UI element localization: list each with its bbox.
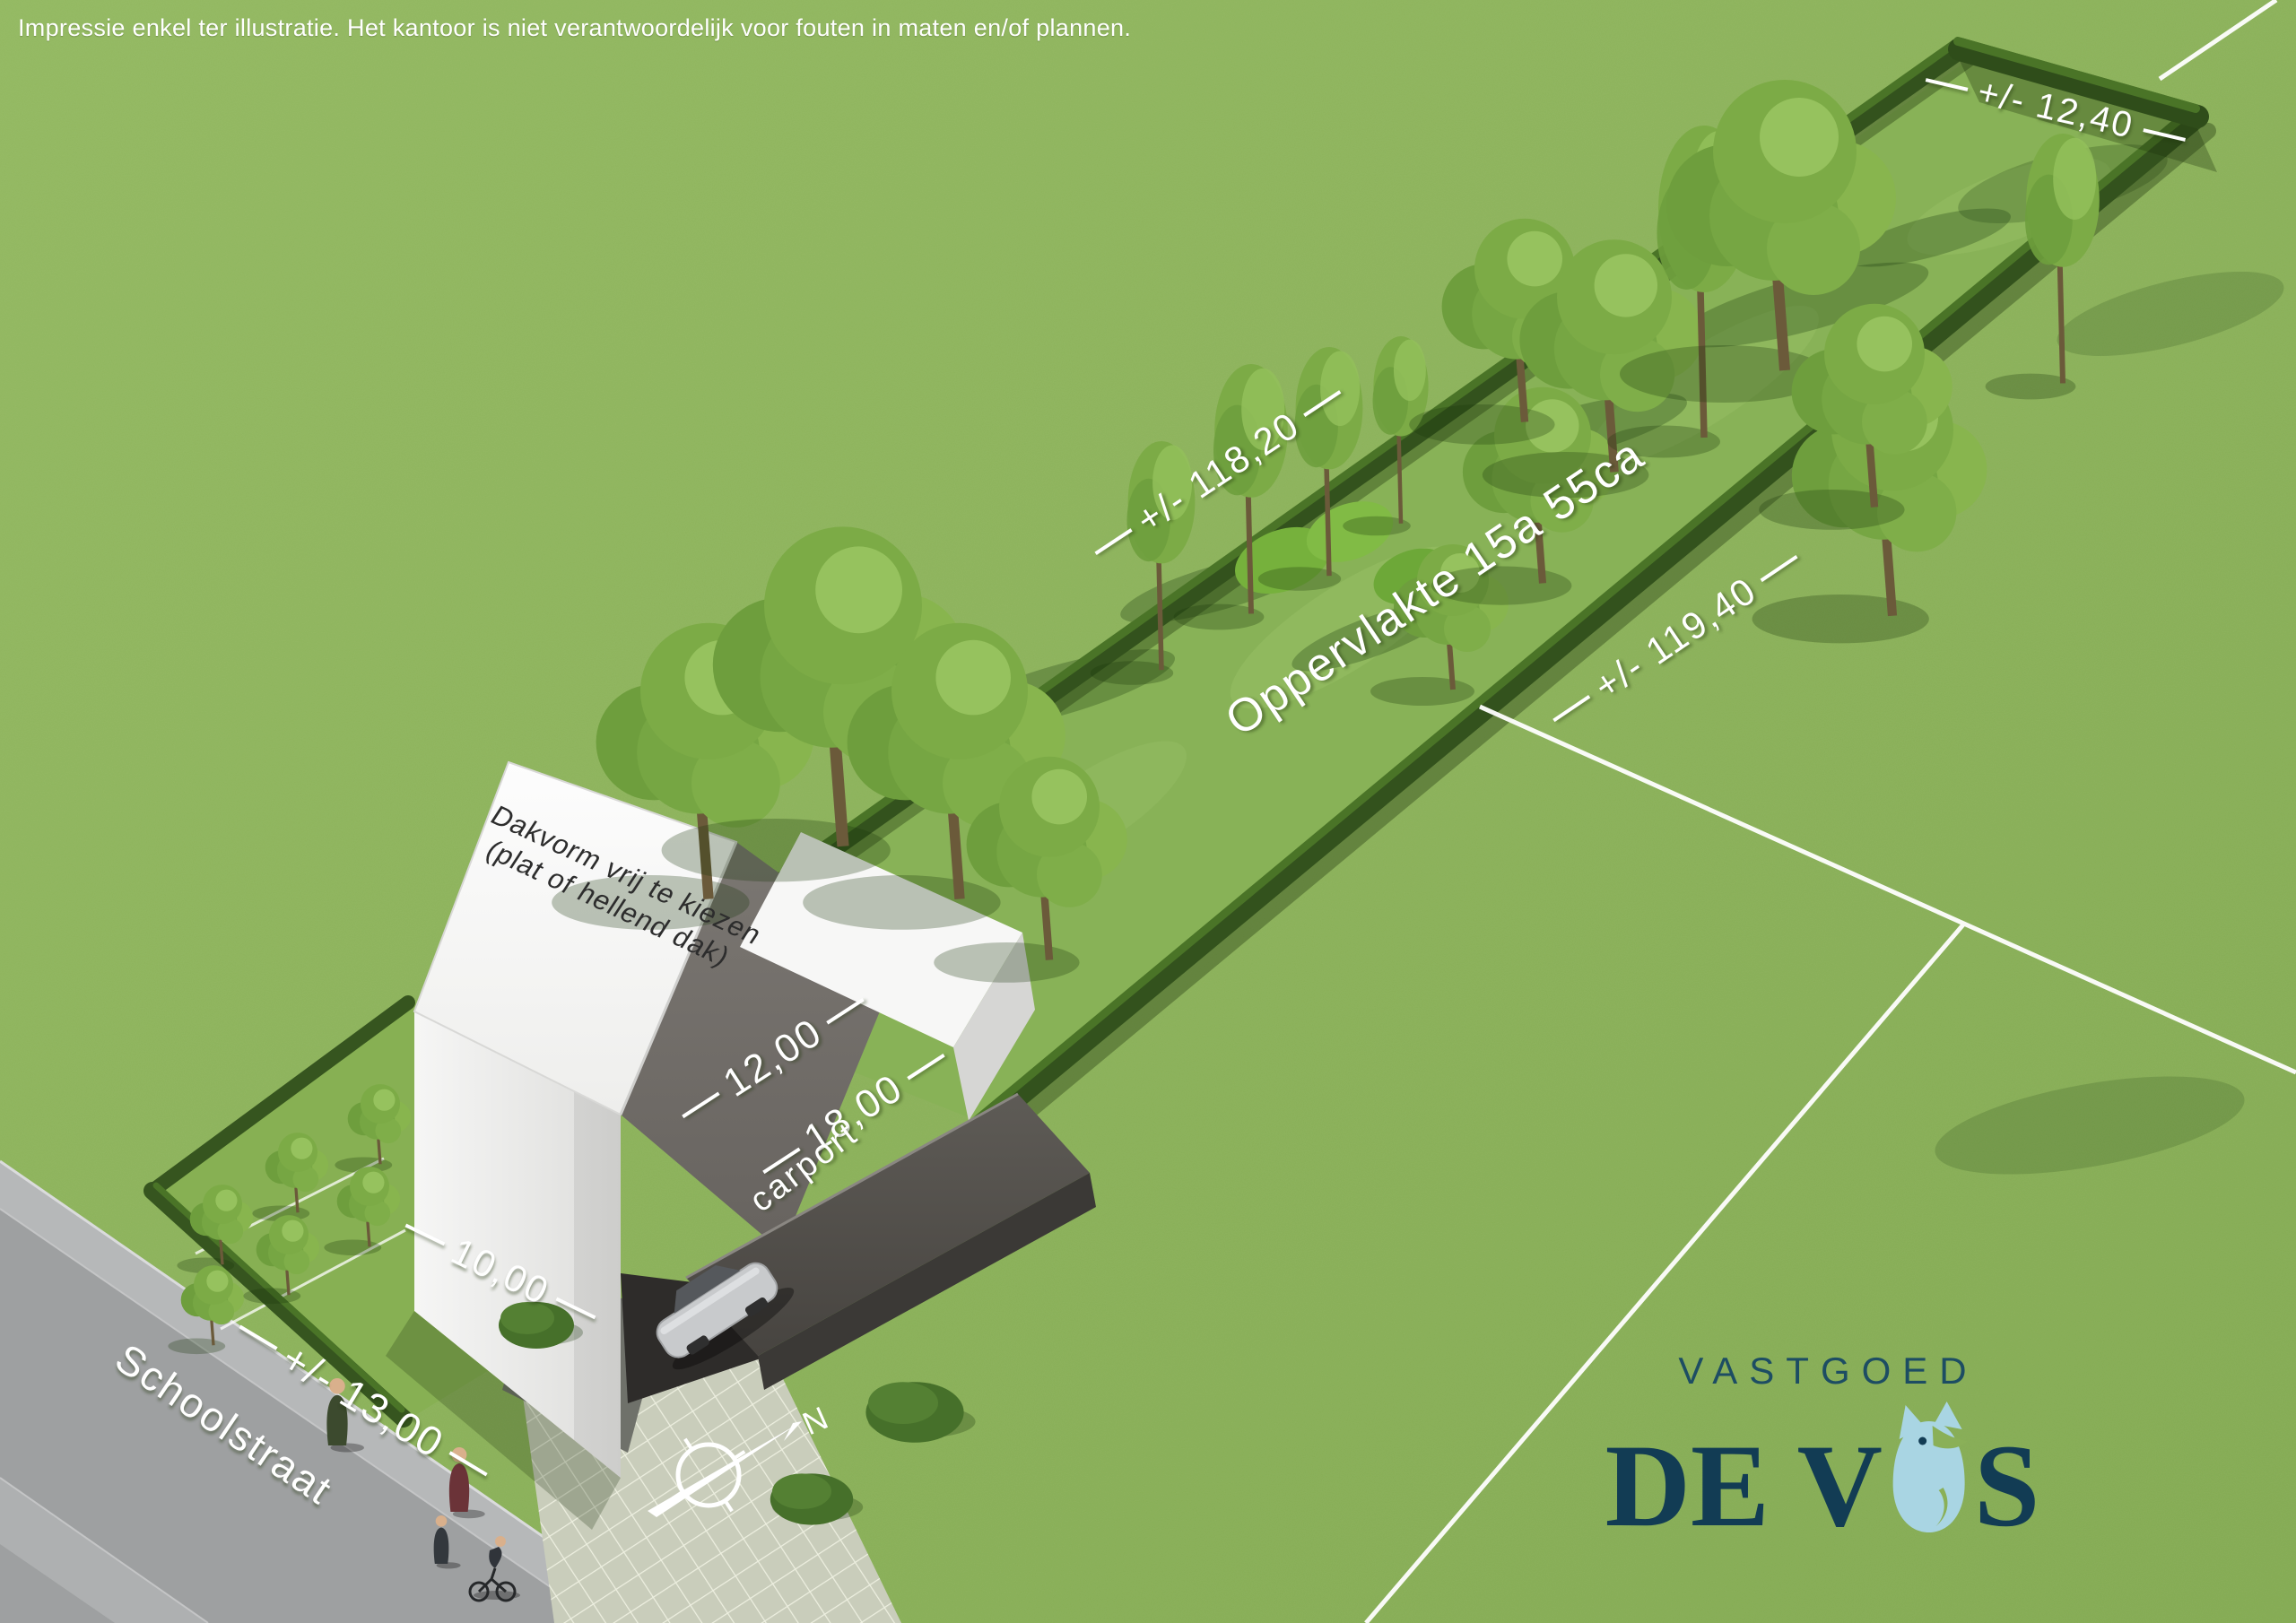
disclaimer-text: Impressie enkel ter illustratie. Het kan…: [18, 14, 1131, 42]
logo-wordmark-main: DE V S: [1605, 1402, 2040, 1541]
logo-wordmark-top: VASTGOED: [1666, 1350, 1978, 1393]
vastgoed-de-vos-logo: VASTGOED DE V S: [1605, 1350, 2040, 1541]
logo-text-left: DE V: [1605, 1429, 1883, 1541]
dimension-leader-line: [1094, 528, 1132, 555]
dimension-leader-line: [2143, 128, 2186, 142]
site-impression: N Impressie enkel ter illustratie. Het k…: [0, 0, 2296, 1623]
dimension-leader-line: [404, 1224, 445, 1246]
dimension-leader-line: [682, 1092, 719, 1118]
dimension-leader-line: [556, 1298, 596, 1320]
dimension-leader-line: [1303, 390, 1341, 417]
fox-icon: [1888, 1402, 1970, 1534]
dimension-leader-line: [1926, 78, 1969, 91]
dimension-leader-line: [1552, 695, 1590, 722]
dimension-leader-line: [1761, 555, 1798, 582]
dimension-leader-line: [239, 1325, 277, 1350]
dimension-leader-line: [907, 1054, 944, 1080]
logo-text-right: S: [1974, 1429, 2039, 1541]
dimension-leader-line: [826, 998, 864, 1024]
dimension-leader-line: [448, 1451, 487, 1476]
